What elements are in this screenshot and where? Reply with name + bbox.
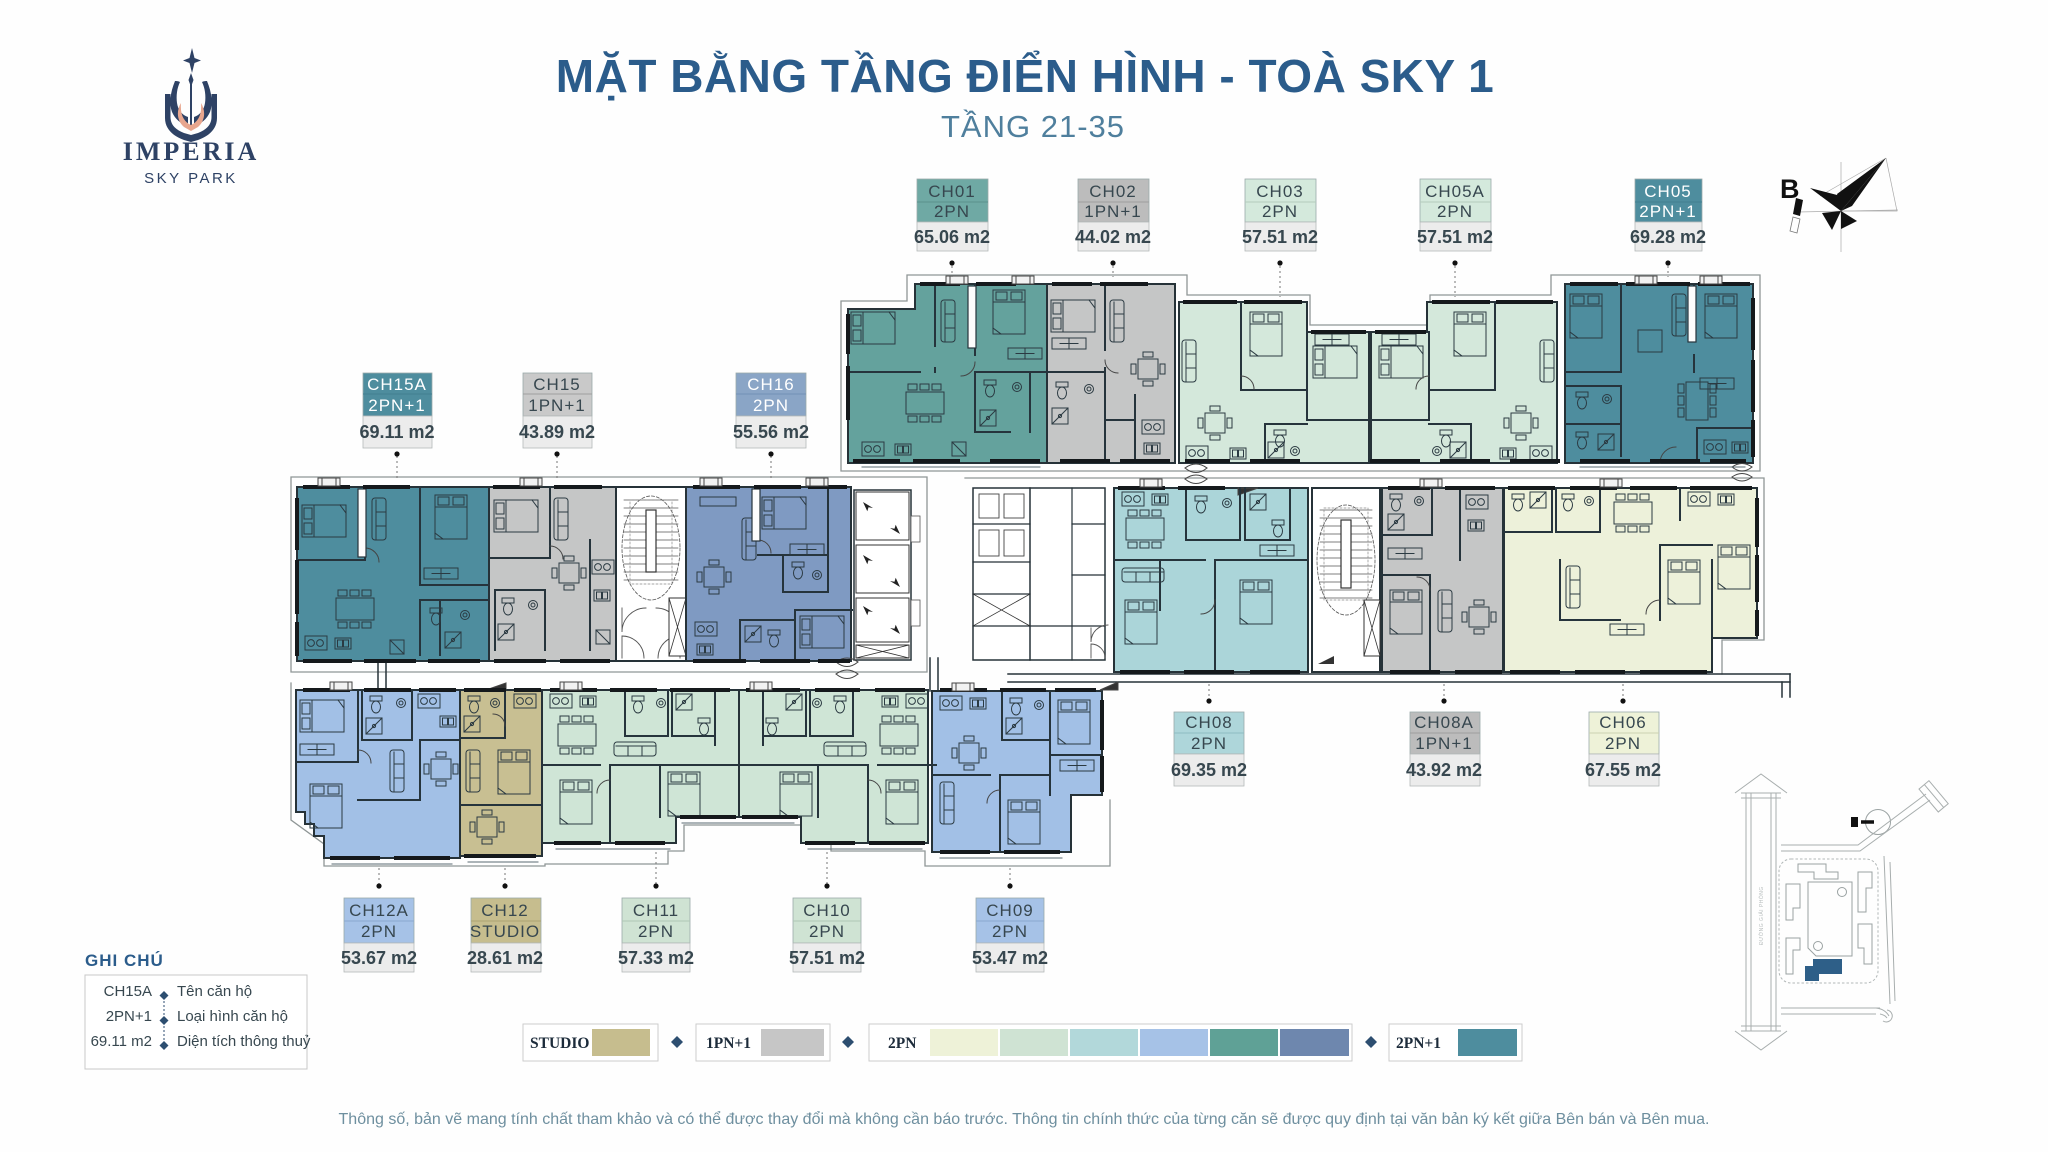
svg-text:SKY PARK: SKY PARK [144,170,238,187]
svg-text:69.11 m2: 69.11 m2 [359,422,434,442]
svg-text:STUDIO: STUDIO [470,922,540,941]
svg-text:CH12A: CH12A [349,901,409,920]
svg-text:44.02 m2: 44.02 m2 [1075,227,1151,247]
svg-text:2PN: 2PN [1437,202,1473,221]
svg-text:Tên căn hộ: Tên căn hộ [177,983,252,1000]
svg-text:CH15A: CH15A [367,375,427,394]
svg-text:CH12: CH12 [481,901,528,920]
svg-text:Diện tích thông thuỷ: Diện tích thông thuỷ [177,1033,311,1050]
svg-text:TẦNG 21-35: TẦNG 21-35 [941,109,1125,144]
svg-text:57.51 m2: 57.51 m2 [789,948,865,968]
svg-text:57.33 m2: 57.33 m2 [618,948,694,968]
svg-text:CH15: CH15 [533,375,580,394]
svg-text:CH01: CH01 [928,182,975,201]
svg-text:Thông số, bản vẽ mang tính chấ: Thông số, bản vẽ mang tính chất tham khả… [339,1110,1710,1128]
svg-text:2PN+1: 2PN+1 [1396,1035,1441,1052]
svg-text:2PN: 2PN [809,922,845,941]
svg-text:CH10: CH10 [803,901,850,920]
svg-text:2PN+1: 2PN+1 [368,396,425,415]
svg-text:55.56 m2: 55.56 m2 [733,422,809,442]
svg-text:CH05A: CH05A [1425,182,1485,201]
svg-text:CH02: CH02 [1089,182,1136,201]
svg-text:2PN+1: 2PN+1 [1639,202,1696,221]
svg-text:2PN: 2PN [1191,734,1227,753]
svg-text:CH09: CH09 [986,901,1033,920]
svg-text:57.51 m2: 57.51 m2 [1242,227,1318,247]
svg-text:ĐƯỜNG GIẢI PHÓNG: ĐƯỜNG GIẢI PHÓNG [1758,886,1765,945]
svg-text:2PN: 2PN [638,922,674,941]
svg-text:53.47 m2: 53.47 m2 [972,948,1048,968]
svg-text:2PN+1: 2PN+1 [106,1008,152,1025]
svg-text:CH11: CH11 [633,901,679,920]
svg-text:CH05: CH05 [1644,182,1691,201]
svg-text:2PN: 2PN [934,202,970,221]
svg-text:CH16: CH16 [747,375,794,394]
svg-text:CH08A: CH08A [1414,713,1474,732]
svg-text:1PN+1: 1PN+1 [1084,202,1141,221]
svg-text:STUDIO: STUDIO [530,1035,589,1052]
svg-text:1PN+1: 1PN+1 [706,1035,751,1052]
svg-text:28.61 m2: 28.61 m2 [467,948,543,968]
svg-text:2PN: 2PN [753,396,789,415]
svg-text:43.92 m2: 43.92 m2 [1406,760,1482,780]
svg-text:53.67 m2: 53.67 m2 [341,948,417,968]
svg-text:2PN: 2PN [361,922,397,941]
svg-text:69.28 m2: 69.28 m2 [1630,227,1706,247]
svg-text:MẶT BẰNG TẦNG ĐIỂN HÌNH - TOÀ: MẶT BẰNG TẦNG ĐIỂN HÌNH - TOÀ SKY 1 [556,50,1494,102]
svg-text:CH15A: CH15A [104,983,152,1000]
svg-text:43.89 m2: 43.89 m2 [519,422,595,442]
svg-text:2PN: 2PN [1605,734,1641,753]
svg-text:2PN: 2PN [992,922,1028,941]
svg-text:2PN: 2PN [888,1035,916,1052]
svg-text:CH08: CH08 [1185,713,1232,732]
svg-text:57.51 m2: 57.51 m2 [1417,227,1493,247]
svg-text:1PN+1: 1PN+1 [1415,734,1472,753]
svg-text:2PN: 2PN [1262,202,1298,221]
svg-text:GHI CHÚ: GHI CHÚ [85,951,164,970]
svg-text:Loại hình căn hộ: Loại hình căn hộ [177,1008,288,1025]
svg-text:CH06: CH06 [1599,713,1646,732]
svg-text:67.55 m2: 67.55 m2 [1585,760,1661,780]
svg-text:IMPERIA: IMPERIA [123,137,260,166]
svg-text:65.06 m2: 65.06 m2 [914,227,990,247]
svg-text:69.35 m2: 69.35 m2 [1171,760,1247,780]
svg-text:CH03: CH03 [1256,182,1303,201]
svg-text:1PN+1: 1PN+1 [528,396,585,415]
svg-text:69.11 m2: 69.11 m2 [91,1033,152,1050]
